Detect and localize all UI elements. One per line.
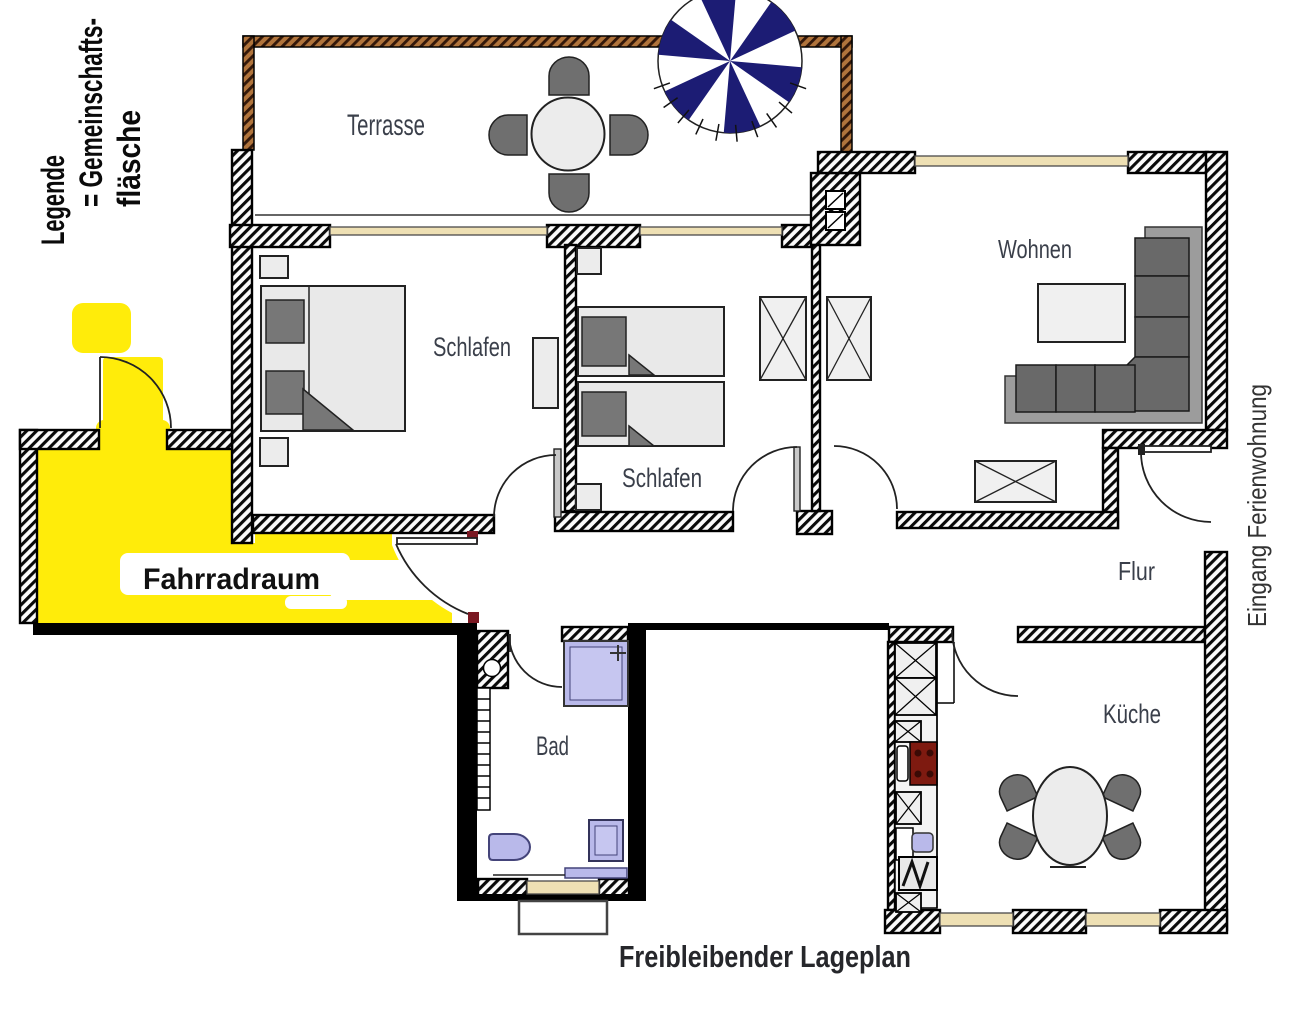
svg-text:Küche: Küche [1103, 699, 1161, 729]
svg-text:Wohnen: Wohnen [998, 234, 1072, 264]
svg-text:Flur: Flur [1118, 556, 1155, 586]
svg-text:Bad: Bad [536, 731, 569, 761]
svg-text:Terrasse: Terrasse [347, 109, 425, 142]
svg-text:Freibleibender Lageplan: Freibleibender Lageplan [619, 939, 911, 974]
svg-text:Schlafen: Schlafen [622, 463, 702, 493]
svg-text:Fahrradraum: Fahrradraum [143, 563, 320, 596]
svg-text:fläsche: fläsche [111, 110, 147, 207]
svg-text:Schlafen: Schlafen [433, 332, 511, 362]
svg-text:Eingang Ferienwohnung: Eingang Ferienwohnung [1242, 384, 1272, 627]
svg-text:Legende: Legende [35, 155, 71, 245]
svg-text:= Gemeinschafts-: = Gemeinschafts- [73, 18, 109, 207]
